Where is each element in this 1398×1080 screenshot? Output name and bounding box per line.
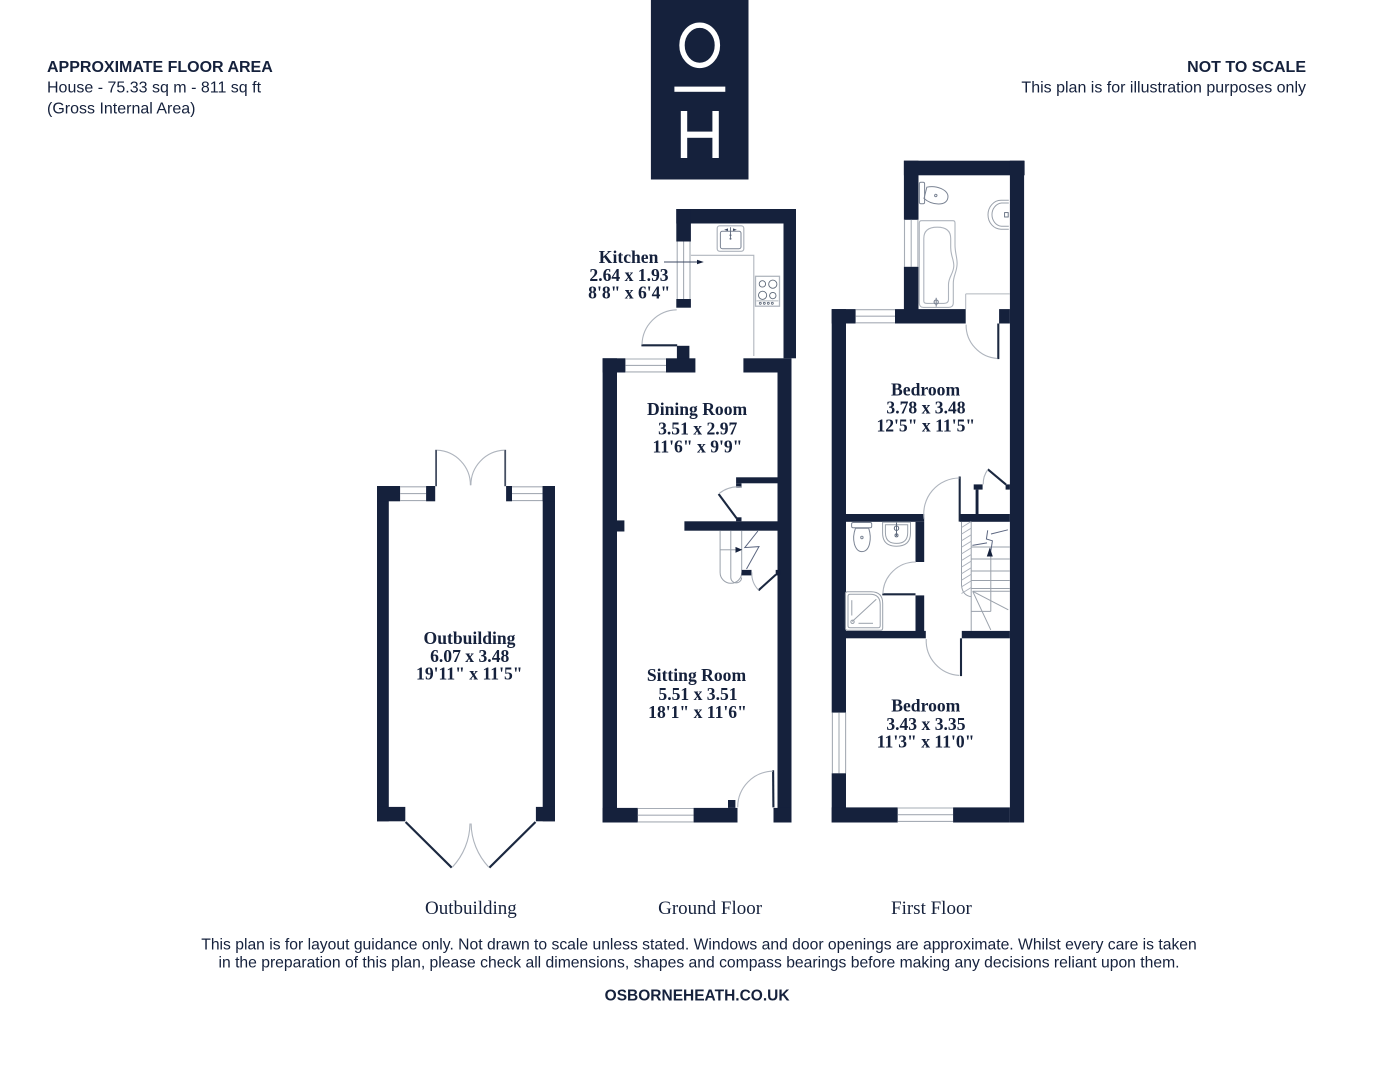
svg-text:OSBORNEHEATH.CO.UK: OSBORNEHEATH.CO.UK <box>605 988 791 1005</box>
svg-text:8'8" x 6'4": 8'8" x 6'4" <box>588 282 670 302</box>
svg-text:APPROXIMATE FLOOR AREA: APPROXIMATE FLOOR AREA <box>47 59 273 76</box>
svg-text:5.51 x 3.51: 5.51 x 3.51 <box>658 684 737 704</box>
svg-text:This plan is for illustration: This plan is for illustration purposes o… <box>1021 80 1306 97</box>
svg-text:This plan is for layout guidan: This plan is for layout guidance only. N… <box>201 937 1197 954</box>
svg-text:in the preparation of this pla: in the preparation of this plan, please … <box>219 955 1180 972</box>
svg-text:Bedroom: Bedroom <box>891 696 960 716</box>
svg-text:Kitchen: Kitchen <box>599 247 659 267</box>
svg-text:19'11" x 11'5": 19'11" x 11'5" <box>416 664 523 684</box>
svg-text:(Gross Internal Area): (Gross Internal Area) <box>47 101 196 118</box>
svg-text:11'3" x 11'0": 11'3" x 11'0" <box>877 731 975 751</box>
svg-text:12'5" x 11'5": 12'5" x 11'5" <box>876 415 975 435</box>
svg-text:3.51 x 2.97: 3.51 x 2.97 <box>658 418 737 438</box>
svg-text:18'1" x 11'6": 18'1" x 11'6" <box>648 702 747 722</box>
svg-text:Dining Room: Dining Room <box>647 399 748 419</box>
svg-text:First Floor: First Floor <box>891 898 972 919</box>
svg-text:Sitting Room: Sitting Room <box>647 665 747 685</box>
svg-text:Outbuilding: Outbuilding <box>425 898 517 919</box>
svg-text:House - 75.33 sq m - 811 sq ft: House - 75.33 sq m - 811 sq ft <box>47 80 262 97</box>
svg-text:Outbuilding: Outbuilding <box>424 628 516 648</box>
svg-text:NOT TO SCALE: NOT TO SCALE <box>1187 59 1306 76</box>
svg-text:Ground Floor: Ground Floor <box>658 898 763 919</box>
svg-text:11'6" x 9'9": 11'6" x 9'9" <box>653 437 743 457</box>
